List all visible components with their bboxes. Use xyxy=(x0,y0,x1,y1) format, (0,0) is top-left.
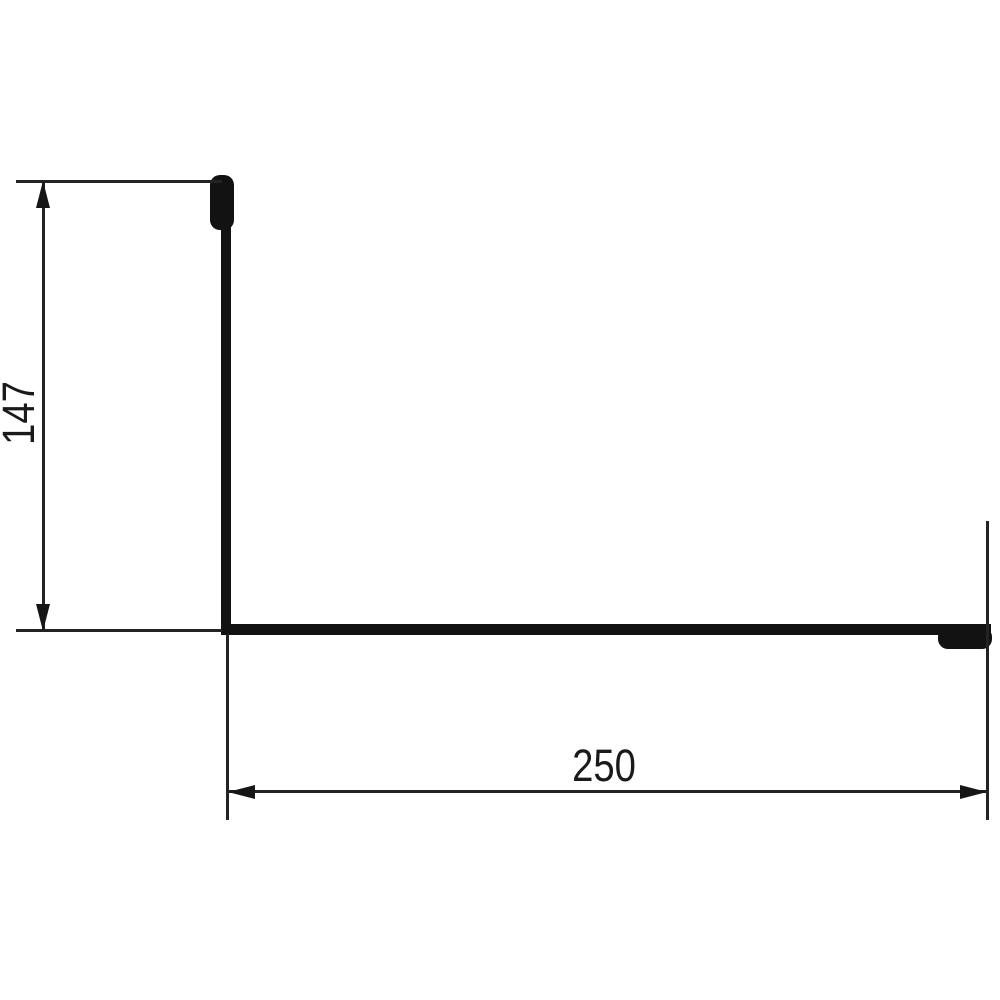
technical-drawing-canvas: 147 250 xyxy=(0,0,1000,1000)
dimension-label-width: 250 xyxy=(536,744,672,788)
dimension-arrow-left-icon xyxy=(228,785,255,799)
profile-right-hem-fold xyxy=(938,627,992,649)
dimension-arrow-down-icon xyxy=(36,604,50,631)
extension-line-width-right xyxy=(986,521,989,820)
dimension-label-height: 147 xyxy=(0,379,41,447)
profile-vertical-leg xyxy=(221,178,231,634)
dimension-arrow-up-icon xyxy=(36,181,50,208)
profile-horizontal-leg xyxy=(221,624,991,635)
dimension-arrow-right-icon xyxy=(960,785,987,799)
